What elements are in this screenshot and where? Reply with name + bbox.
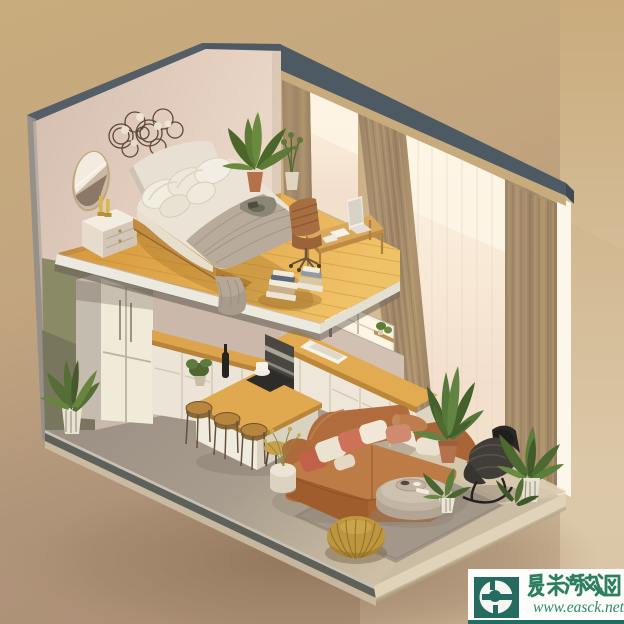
- svg-text:www.easck.net: www.easck.net: [533, 599, 624, 616]
